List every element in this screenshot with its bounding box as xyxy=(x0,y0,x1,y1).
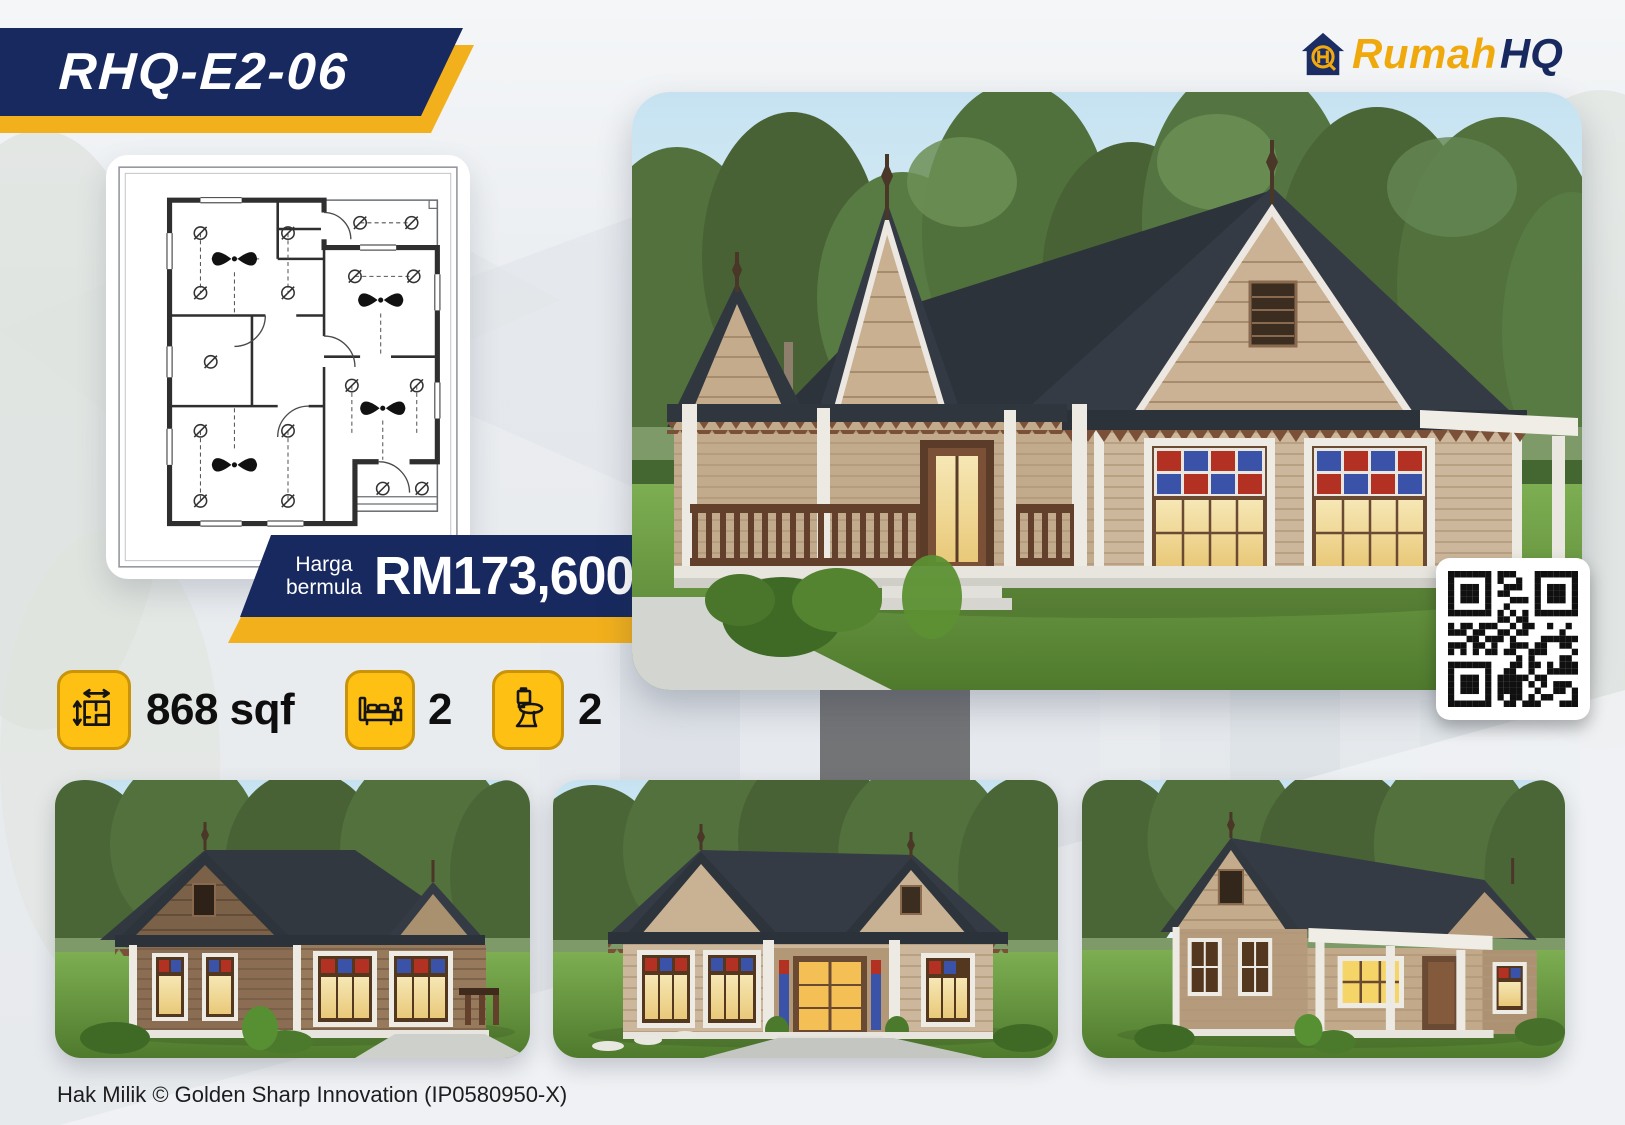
floor-area-badge xyxy=(57,670,131,750)
bedrooms-badge xyxy=(345,670,415,750)
bathrooms-badge xyxy=(492,670,564,750)
floor-plan-card xyxy=(106,155,470,579)
thumbnail-house-rear-view xyxy=(1082,780,1565,1058)
brand-name-suffix: HQ xyxy=(1500,30,1563,78)
thumbnail-house-front-view xyxy=(553,780,1058,1058)
stained-glass-window xyxy=(1493,962,1527,1014)
model-code-banner: RHQ-E2-06 xyxy=(0,28,463,116)
stained-glass-window xyxy=(703,950,761,1028)
price-banner: Harga bermula RM173,600 xyxy=(240,535,642,617)
price-ribbon-accent xyxy=(228,617,642,643)
stained-glass-window xyxy=(313,951,377,1027)
bathrooms-value: 2 xyxy=(578,670,602,750)
brand-logo: RumahHQ xyxy=(1300,28,1563,80)
plain-window xyxy=(1238,938,1272,996)
bed-icon xyxy=(356,685,404,735)
stained-glass-window xyxy=(1142,438,1277,581)
house-render-rear-view xyxy=(1082,780,1565,1058)
stained-glass-window xyxy=(389,951,453,1027)
floor-area-value: 868 sqf xyxy=(146,670,294,750)
toilet-icon xyxy=(504,684,552,736)
plain-window xyxy=(1188,938,1222,996)
qr-code-pattern xyxy=(1448,571,1578,707)
narrow-window xyxy=(152,953,188,1021)
thumbnail-house-side-view xyxy=(55,780,530,1058)
model-code: RHQ-E2-06 xyxy=(58,42,351,102)
stained-glass-window xyxy=(921,953,975,1027)
price-label: Harga bermula xyxy=(286,553,362,599)
bedrooms-value: 2 xyxy=(428,670,452,750)
price-label-line2: bermula xyxy=(286,576,362,599)
floor-area-icon xyxy=(69,683,119,737)
front-entrance-door xyxy=(779,956,881,1036)
brand-name-primary: Rumah xyxy=(1352,30,1497,78)
house-render-side-view xyxy=(55,780,530,1058)
narrow-window xyxy=(202,953,238,1021)
stained-glass-window xyxy=(1302,438,1437,581)
price-label-line1: Harga xyxy=(286,553,362,576)
floor-plan-drawing xyxy=(112,161,464,573)
qr-code xyxy=(1436,558,1590,720)
rumahhq-house-logo-icon xyxy=(1300,31,1346,77)
stained-glass-window xyxy=(637,950,695,1028)
house-render-front-view xyxy=(553,780,1058,1058)
price-value: RM173,600 xyxy=(374,545,633,607)
copyright-notice: Hak Milik © Golden Sharp Innovation (IP0… xyxy=(57,1082,567,1108)
flyer-page: RHQ-E2-06 RumahHQ xyxy=(0,0,1625,1125)
